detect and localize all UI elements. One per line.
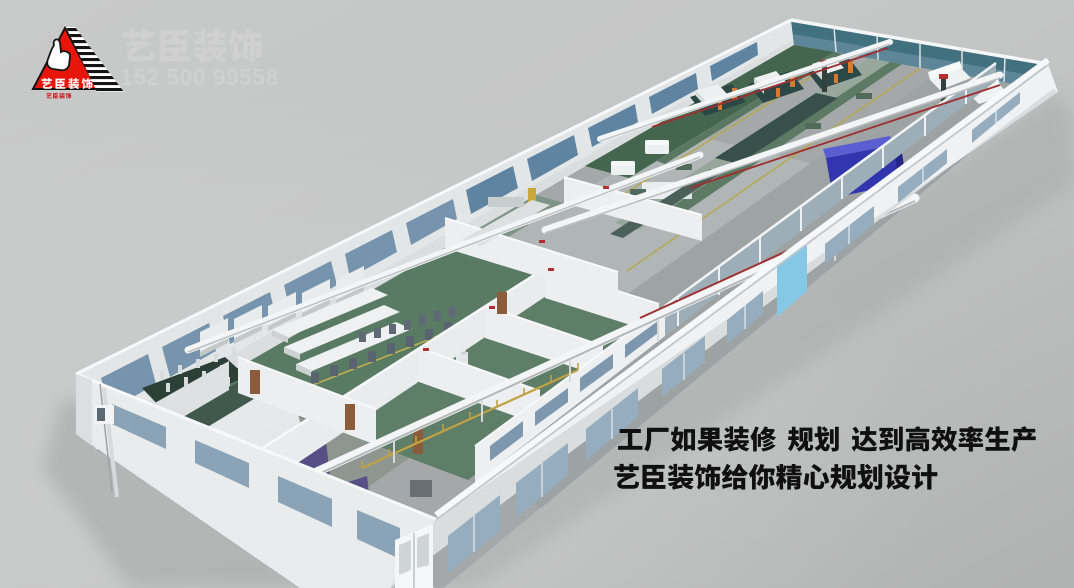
svg-text:152 500 99558: 152 500 99558 — [120, 64, 279, 90]
